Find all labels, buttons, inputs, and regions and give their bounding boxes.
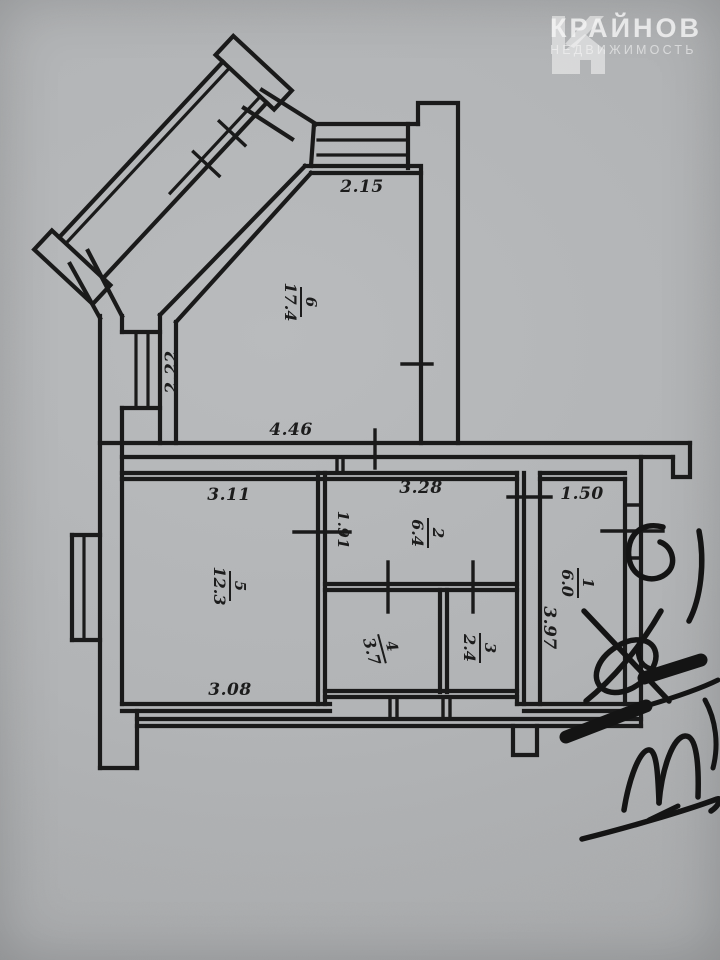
room3-area: 2.4 [460,619,479,677]
room-label-5: 5 12.3 [210,557,248,615]
room2-number: 2 [427,518,446,548]
floor-plan-photo: КРАЙНОВ НЕДВИЖИМОСТЬ [0,0,720,960]
dimension-left-window: 2.22 [162,340,182,404]
room6-number: 6 [300,287,319,317]
dimension-room1-top: 1.50 [550,484,614,504]
room1-area: 6.0 [558,554,577,612]
dimension-room2-top: 3.28 [389,478,453,498]
floor-plan-drawing [0,0,720,960]
dimension-hall-bottom: 4.46 [259,420,323,440]
room-label-1: 1 6.0 [558,554,596,612]
room5-number: 5 [229,571,248,601]
dimension-room1-left: 3.97 [539,596,559,660]
dimension-room5-top: 3.11 [197,485,261,505]
room-label-2: 2 6.4 [408,504,446,562]
dimension-top-window: 2.15 [330,177,394,197]
room1-number: 1 [577,568,596,598]
room2-area: 6.4 [408,504,427,562]
room6-area: 17.4 [281,273,300,331]
dimension-room2-left: 1.91 [334,498,352,562]
dimension-room5-bottom: 3.08 [198,680,262,700]
room5-area: 12.3 [210,557,229,615]
room-label-6: 6 17.4 [281,273,319,331]
room3-number: 3 [479,633,498,663]
room-label-3: 3 2.4 [460,619,498,677]
